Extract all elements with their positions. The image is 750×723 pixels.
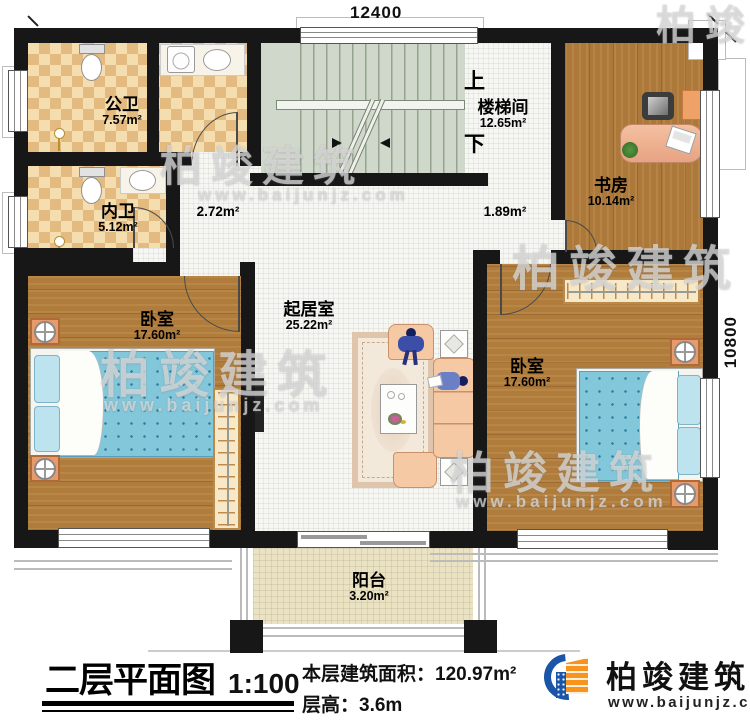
table-lamp-icon <box>444 462 464 482</box>
hall-area-left: 2.72m² <box>197 204 240 219</box>
logo-building-orange <box>566 658 588 694</box>
toilet-bowl <box>81 54 102 81</box>
dimension-right: 10800 <box>721 316 741 368</box>
room-name: 阳台 <box>349 572 389 590</box>
window-stairwell-top <box>300 27 478 44</box>
title-underline-thick <box>42 701 294 706</box>
pillow <box>677 427 701 475</box>
sliding-door-panel-2 <box>360 541 426 545</box>
plant-icon <box>622 142 638 158</box>
chair-seat <box>648 97 668 115</box>
person-sitting-2 <box>428 368 468 398</box>
room-label-stairwell: 楼梯间 12.65m² <box>478 99 529 131</box>
bedside-lamp-icon <box>674 341 696 363</box>
wall-public-bath-right <box>247 28 261 166</box>
person-sitting-1 <box>396 328 426 366</box>
table-lamp-icon <box>444 334 464 354</box>
window-bedroom-left-south <box>58 528 210 548</box>
pillow <box>34 355 60 403</box>
stair-down-label: 下 <box>464 128 485 158</box>
laptop-screen <box>672 131 692 144</box>
wall-bedroom-left-top-a <box>14 262 180 276</box>
toilet-tank <box>79 44 105 54</box>
window-sill-right-1 <box>718 58 746 170</box>
side-table-bottom <box>440 458 468 486</box>
hall-area-right: 1.89m² <box>484 204 527 219</box>
floor-area-value: 120.97m² <box>435 664 516 685</box>
room-area: 10.14m² <box>588 195 635 209</box>
room-label-living: 起居室 25.22m² <box>284 301 335 333</box>
wardrobe-right <box>563 278 700 304</box>
window-bedroom-right-south <box>517 529 668 549</box>
person-leg <box>412 350 418 365</box>
study-cabinet <box>682 90 702 120</box>
window-public-bath-left <box>8 70 28 132</box>
wardrobe-pole <box>567 291 696 293</box>
bedside-lamp-icon <box>34 321 56 343</box>
room-name: 公卫 <box>102 96 142 114</box>
sliding-door-panel-1 <box>301 535 367 539</box>
pillow <box>677 375 701 425</box>
wall-stairs-bottom <box>250 173 488 186</box>
balcony-pillar-left <box>230 620 263 653</box>
brand-name: 柏竣建筑 <box>606 652 750 697</box>
sink-icon-public <box>203 49 231 71</box>
eave-line-left-1 <box>14 560 232 562</box>
person-leg <box>402 350 410 366</box>
room-area: 17.60m² <box>504 376 551 390</box>
eave-line-right-1 <box>430 553 718 555</box>
floor-height-line: 层高：3.6m <box>302 690 402 717</box>
wall-living-bottom-b <box>430 531 517 548</box>
balcony-sliding-door <box>297 531 430 548</box>
flower-decor-icon <box>388 413 402 425</box>
wall-bedroom-right-top <box>551 250 703 264</box>
room-area: 7.57m² <box>102 114 142 128</box>
wall-inner-bath-bottom-a <box>28 248 133 262</box>
wall-bedroom-right-bottom <box>668 531 718 550</box>
cup-icon <box>398 393 405 400</box>
room-label-public-bath: 公卫 7.57m² <box>102 96 142 128</box>
toilet-tank <box>79 167 105 177</box>
armchair-bottom <box>393 452 437 488</box>
room-name: 书房 <box>588 177 635 195</box>
wardrobe-pole <box>227 392 229 526</box>
window-inner-bath-left <box>8 196 28 248</box>
dimension-top: 12400 <box>350 3 402 23</box>
page-title: 二层平面图 <box>45 652 215 703</box>
bed-left <box>30 348 215 458</box>
nightstand-left-bottom <box>30 455 60 482</box>
room-name: 卧室 <box>134 311 181 329</box>
balcony-pillar-right <box>464 620 497 653</box>
brand-logo-icon <box>544 652 600 710</box>
brand-website: www.baijunjz.com <box>608 694 750 711</box>
room-label-bedroom-left: 卧室 17.60m² <box>134 311 181 343</box>
nightstand-left-top <box>30 318 60 345</box>
room-area: 12.65m² <box>478 117 529 131</box>
wall-bedroom-right-left <box>473 250 487 531</box>
room-area: 3.20m² <box>349 590 389 604</box>
toilet-bowl <box>81 177 102 204</box>
eave-line-left-2 <box>14 568 232 570</box>
room-label-inner-bath: 内卫 5.12m² <box>98 203 138 235</box>
room-label-balcony: 阳台 3.20m² <box>349 572 389 604</box>
title-underline-thin <box>42 710 294 712</box>
nightstand-right-top <box>670 338 700 366</box>
sink-icon-inner <box>129 170 156 191</box>
tv-icon <box>255 378 264 432</box>
floor-height-label: 层高： <box>302 695 359 716</box>
floor-area-line: 本层建筑面积：120.97m² <box>302 659 516 686</box>
floor-height-value: 3.6m <box>359 695 402 716</box>
wardrobe-left <box>213 388 240 530</box>
pillow <box>34 406 60 452</box>
window-study-right <box>700 90 720 218</box>
nightstand-right-bottom <box>670 480 700 508</box>
room-name: 卧室 <box>504 358 551 376</box>
wall-bath-divider-a <box>28 152 191 166</box>
bed-sheet <box>639 371 678 479</box>
stair-up-label: 上 <box>464 65 485 95</box>
room-name: 楼梯间 <box>478 99 529 117</box>
bedside-lamp-icon <box>34 458 56 480</box>
room-name: 内卫 <box>98 203 138 221</box>
stair-arrow-right <box>332 138 342 148</box>
wall-bedroom-left-right <box>241 262 255 548</box>
floor-area-label: 本层建筑面积： <box>302 664 435 685</box>
plan-scale: 1:100 <box>228 668 300 700</box>
room-label-bedroom-right: 卧室 17.60m² <box>504 358 551 390</box>
person-body <box>398 336 424 352</box>
cup-icon <box>387 391 395 399</box>
office-chair <box>642 92 674 120</box>
stair-arrow-left <box>380 138 390 148</box>
bedside-lamp-icon <box>674 483 696 505</box>
balcony-rail-bottom-1 <box>230 627 497 629</box>
side-table-top <box>440 330 468 358</box>
toilet-icon-public <box>79 44 105 84</box>
floor-plan-canvas: 公卫 7.57m² 内卫 5.12m² 楼梯间 12.65m² 书房 10.14… <box>0 0 750 723</box>
room-area: 17.60m² <box>134 329 181 343</box>
toilet-icon-inner <box>79 167 105 207</box>
balcony-rail-bottom-2 <box>230 635 497 637</box>
washer-drum <box>173 52 190 69</box>
washer-icon <box>167 46 195 73</box>
wall-bath-partition <box>147 43 159 152</box>
wall-study-left <box>551 28 565 220</box>
logo-building-blue <box>556 672 566 698</box>
dim-tick <box>27 15 38 26</box>
room-area: 25.22m² <box>284 319 335 333</box>
floor-drain-public-stem <box>58 138 60 151</box>
brand-logo: 柏竣建筑 www.baijunjz.com <box>544 650 744 716</box>
bed-sheet <box>59 351 104 455</box>
eave-line-right-2 <box>430 560 718 562</box>
window-bedroom-right-east <box>700 378 720 478</box>
bed-right <box>576 368 703 482</box>
room-label-study: 书房 10.14m² <box>588 177 635 209</box>
room-name: 起居室 <box>284 301 335 319</box>
room-area: 5.12m² <box>98 221 138 235</box>
dim-tick <box>725 31 736 42</box>
coffee-table <box>380 384 417 434</box>
